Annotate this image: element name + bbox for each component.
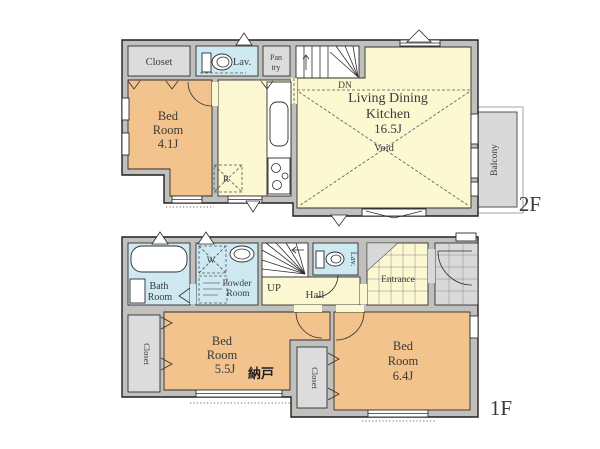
label-nando: 納戸: [248, 366, 274, 382]
label-pantry-line2: try: [272, 63, 281, 72]
label-lav-2f: Lav.: [233, 57, 251, 68]
label-entrance: Entrance: [381, 275, 415, 285]
label-bedroom55-line1: Bed: [212, 334, 233, 348]
opening-hall-entrance: [360, 284, 367, 304]
front-door-opening: [428, 249, 435, 283]
floor-plan-image: Closet Lav. Pan try DN Bed Room 4.1J Liv…: [0, 0, 600, 449]
label-ldk-line1: Living Dining: [348, 91, 428, 106]
label-pantry-line1: Pan: [270, 53, 282, 62]
label-bedroom2f-line1: Bed: [158, 109, 179, 123]
door-opening-55: [294, 305, 322, 312]
label-closet-mid: Closet: [310, 367, 320, 389]
floor-label-2f: 2F: [519, 192, 541, 216]
floor-1f: Bath Room W Powder Room UP Hall Lav. Ent…: [122, 232, 512, 421]
porch: [435, 243, 478, 305]
door-opening-64: [336, 305, 364, 312]
label-bedroom2f-line3: 4.1J: [158, 137, 179, 151]
label-balcony: Balcony: [490, 144, 500, 176]
floor-label-1f: 1F: [490, 396, 512, 420]
label-lav-1f: Lav.: [349, 252, 359, 267]
opening-bath-powder: [190, 284, 196, 304]
basin-icon: [230, 246, 254, 262]
staircase-2f: [296, 46, 359, 78]
floor-plan-page: Closet Lav. Pan try DN Bed Room 4.1J Liv…: [0, 0, 600, 449]
label-powder-line1: Powder: [222, 279, 252, 289]
label-hall: Hall: [306, 289, 325, 301]
label-bath-line2: Room: [148, 292, 173, 303]
floor-2f: Closet Lav. Pan try DN Bed Room 4.1J Liv…: [122, 30, 541, 226]
door-opening-bedroom-2f: [212, 82, 218, 106]
label-bedroom55-line3: 5.5J: [215, 362, 236, 376]
kitchen-counter: [267, 82, 291, 196]
label-closet-left: Closet: [142, 343, 152, 365]
kitchen-sink-icon: [270, 102, 288, 146]
label-dn: DN: [338, 81, 352, 91]
label-ldk-line3: 16.5J: [374, 121, 402, 136]
label-ldk-line2: Kitchen: [366, 107, 410, 122]
label-up: UP: [267, 282, 281, 294]
label-closet-2f: Closet: [146, 57, 173, 68]
label-bath-line1: Bath: [150, 281, 169, 292]
label-bedroom64-line1: Bed: [393, 339, 414, 353]
label-bedroom64-line2: Room: [388, 354, 419, 368]
label-bedroom2f-line2: Room: [153, 123, 184, 137]
label-fridge: R: [223, 175, 230, 185]
label-washer: W: [207, 255, 216, 265]
label-bedroom64-line3: 6.4J: [393, 369, 414, 383]
label-void: Void: [374, 143, 394, 154]
label-bedroom55-line2: Room: [207, 348, 238, 362]
label-powder-line2: Room: [226, 289, 250, 299]
